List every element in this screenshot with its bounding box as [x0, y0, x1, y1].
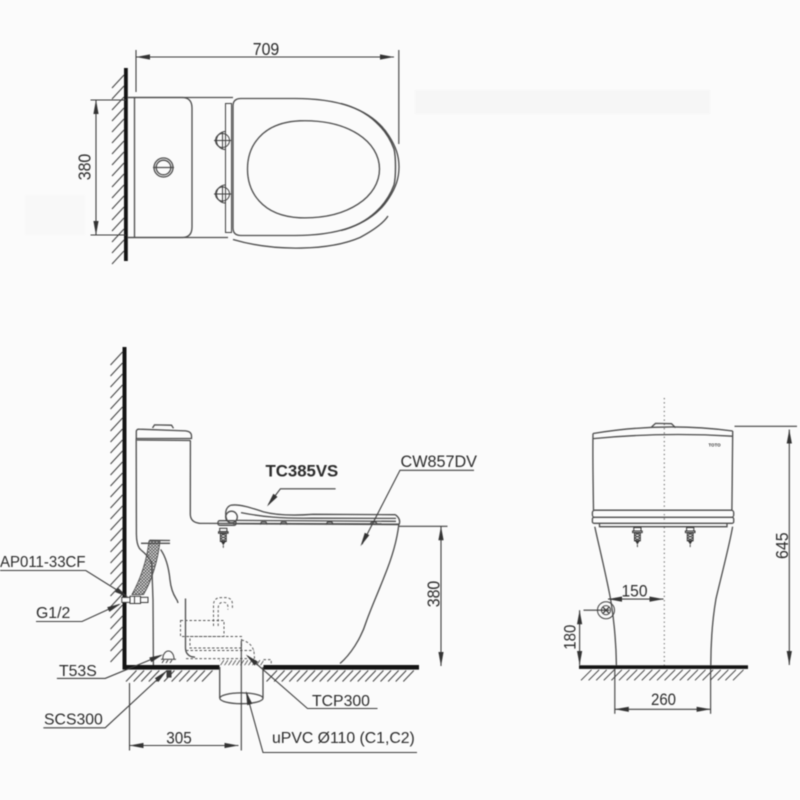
- svg-text:G1/2: G1/2: [36, 605, 70, 622]
- svg-text:AP011-33CF: AP011-33CF: [0, 554, 86, 571]
- svg-text:150: 150: [622, 583, 648, 601]
- svg-text:T53S: T53S: [59, 663, 97, 680]
- svg-text:TC385VS: TC385VS: [266, 462, 339, 481]
- svg-text:260: 260: [651, 691, 676, 709]
- svg-text:uPVC Ø110 (C1,C2): uPVC Ø110 (C1,C2): [272, 730, 415, 747]
- svg-text:CW857DV: CW857DV: [401, 453, 478, 471]
- svg-text:SCS300: SCS300: [44, 712, 103, 729]
- svg-text:TCP300: TCP300: [312, 693, 370, 710]
- svg-text:305: 305: [166, 730, 192, 748]
- svg-text:TOTO: TOTO: [709, 443, 722, 448]
- svg-text:380: 380: [75, 154, 95, 181]
- svg-text:645: 645: [772, 532, 792, 559]
- svg-text:380: 380: [424, 581, 444, 608]
- svg-text:709: 709: [253, 39, 280, 59]
- svg-text:180: 180: [562, 625, 580, 650]
